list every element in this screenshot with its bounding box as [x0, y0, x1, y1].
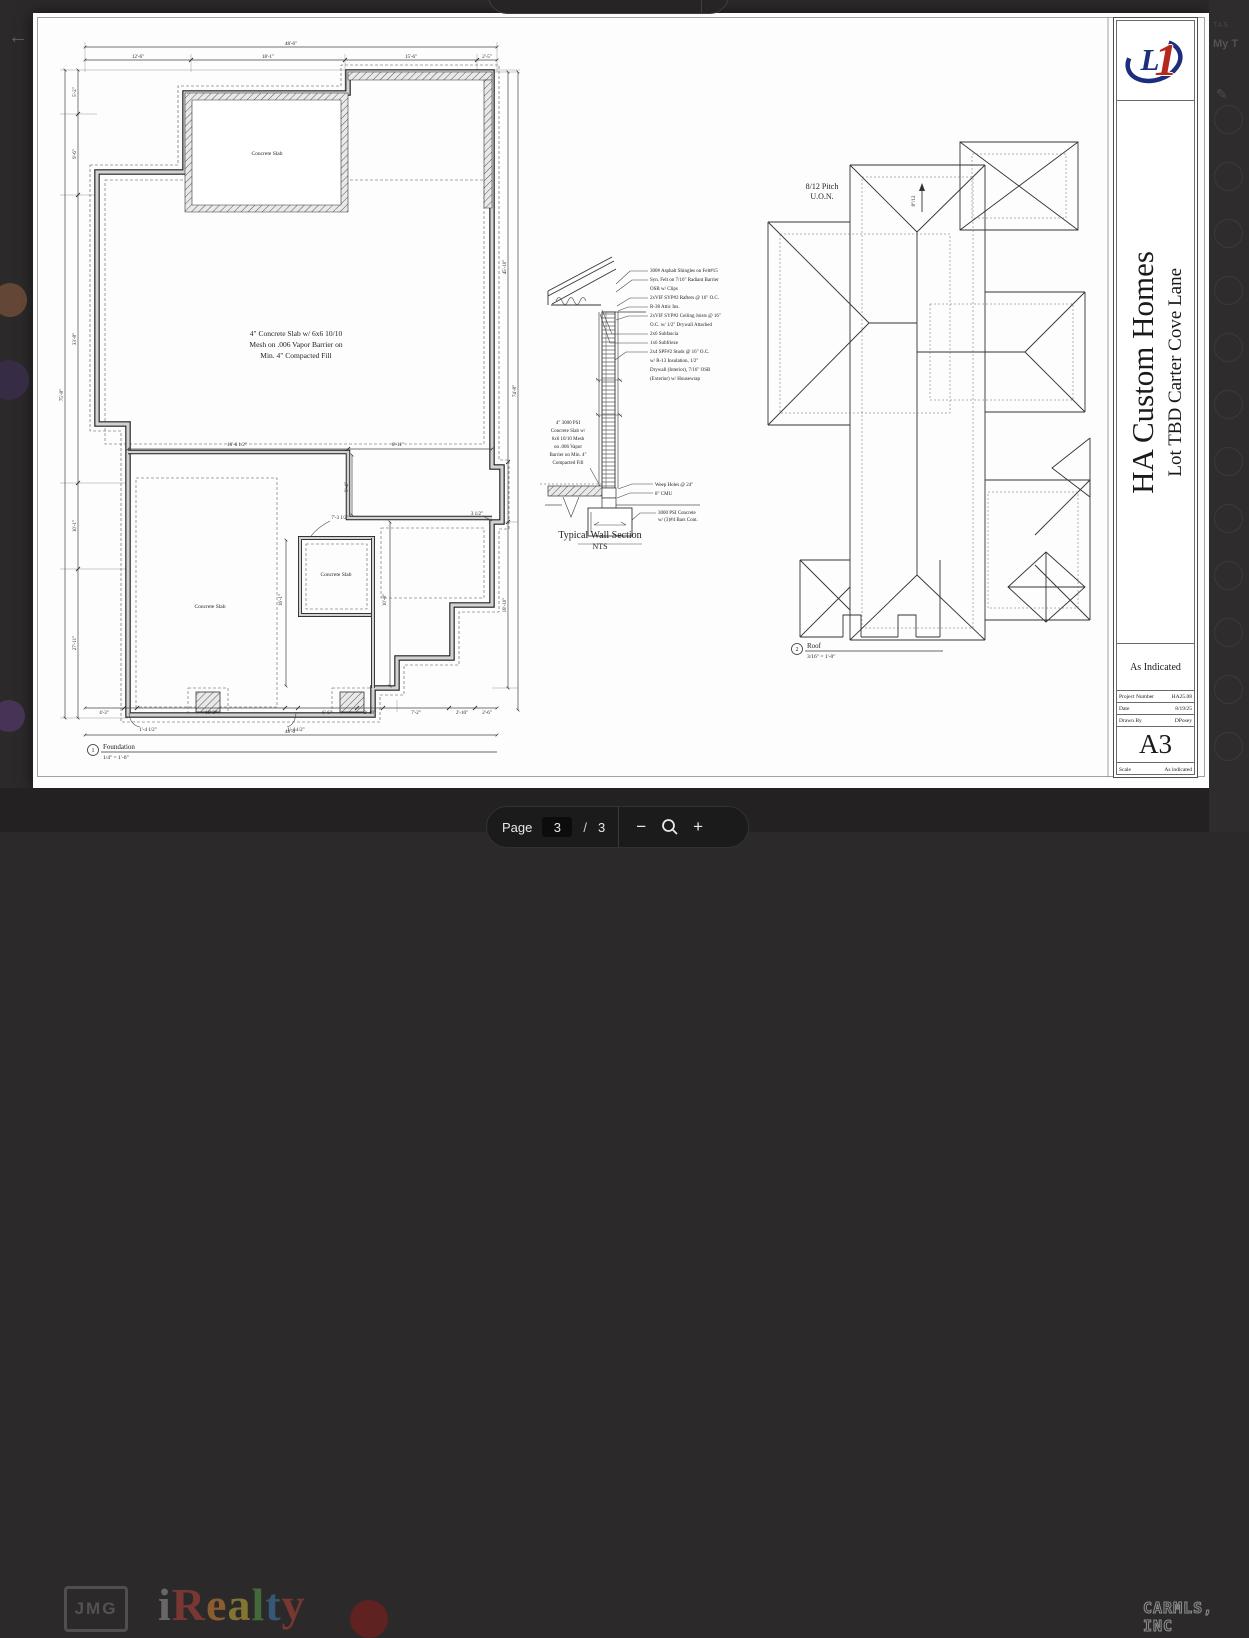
viewer-stage: 48'-6" 12'-6" 18'-1" 15'-6" 2'-5" 75'-8"… [0, 0, 1249, 832]
document-page [33, 13, 1209, 788]
irealty-letter: t [265, 1579, 281, 1630]
irealty-letter: i [158, 1579, 172, 1630]
scale-value: As indicated [1164, 767, 1192, 773]
sidebar-circle-button[interactable] [1214, 162, 1243, 191]
avatar[interactable] [0, 283, 27, 317]
titleblock-row: Project Number HA25.08 [1117, 691, 1194, 703]
avatar[interactable] [0, 700, 25, 732]
company-name: HA Custom Homes [1125, 251, 1161, 494]
title-block: L 1 HA Custom Homes Lot TBD Carter Cove … [1113, 17, 1198, 778]
titleblock-row: Date 8/19/25 [1117, 703, 1194, 715]
zoom-out-button[interactable]: − [636, 817, 646, 837]
row-value: DPosey [1175, 718, 1192, 724]
sidebar-circle-button[interactable] [1214, 105, 1243, 134]
sidebar-circle-button[interactable] [1214, 333, 1243, 362]
row-label: Date [1119, 706, 1129, 712]
sidebar-circle-button[interactable] [1214, 561, 1243, 590]
scale-header: As Indicated [1117, 644, 1194, 691]
right-sidebar: TAS My T ✎ [1209, 0, 1249, 832]
project-name: Lot TBD Carter Cove Lane [1165, 268, 1187, 477]
page-toolbar: Page 3 / 3 − + [486, 806, 749, 848]
sidebar-circle-button[interactable] [1214, 675, 1243, 704]
avatar[interactable] [0, 360, 29, 400]
sheet-number: A3 [1117, 727, 1194, 763]
background-circle-logo [350, 1600, 388, 1638]
sidebar-circle-button[interactable] [1214, 219, 1243, 248]
irealty-letter: e [206, 1579, 227, 1630]
row-label: Drawn By [1119, 718, 1142, 724]
titleblock-row: Drawn By DPosey [1117, 715, 1194, 727]
sidebar-circle-button[interactable] [1214, 276, 1243, 305]
edit-pencil-icon[interactable]: ✎ [1216, 86, 1228, 103]
irealty-letter: a [227, 1579, 251, 1630]
top-toolbar-partial [488, 0, 729, 14]
magnifier-icon[interactable] [661, 818, 679, 836]
irealty-letter: l [251, 1579, 265, 1630]
sidebar-circle-button[interactable] [1214, 618, 1243, 647]
logo-digit-1: 1 [1155, 33, 1178, 86]
irealty-letter: y [282, 1579, 306, 1630]
company-logo: L 1 [1117, 21, 1194, 101]
toolbar-divider [701, 0, 702, 13]
page-number-input[interactable]: 3 [542, 817, 572, 837]
irealty-logo: iRealty [158, 1578, 306, 1631]
mls-watermark: CARMLS, INC [1143, 1599, 1249, 1635]
page-label: Page [502, 820, 532, 835]
page-separator: / [583, 820, 587, 835]
sidebar-circle-button[interactable] [1214, 732, 1243, 761]
toolbar-divider [618, 807, 619, 847]
sidebar-circle-button[interactable] [1214, 504, 1243, 533]
row-value: 8/19/25 [1175, 706, 1192, 712]
irealty-letter: R [172, 1579, 206, 1630]
page-total: 3 [598, 820, 605, 835]
sidebar-text: TAS [1213, 22, 1229, 29]
back-arrow-icon[interactable]: ← [8, 26, 28, 49]
jmg-logo: JMG [64, 1586, 128, 1632]
sidebar-circle-button[interactable] [1214, 447, 1243, 476]
sidebar-circle-button[interactable] [1214, 390, 1243, 419]
titleblock-scale-row: Scale As indicated [1117, 763, 1194, 776]
zoom-in-button[interactable]: + [693, 817, 703, 837]
sidebar-text: My T [1213, 38, 1238, 50]
row-label: Project Number [1119, 694, 1154, 700]
row-value: HA25.08 [1172, 694, 1192, 700]
scale-label: Scale [1119, 767, 1131, 773]
